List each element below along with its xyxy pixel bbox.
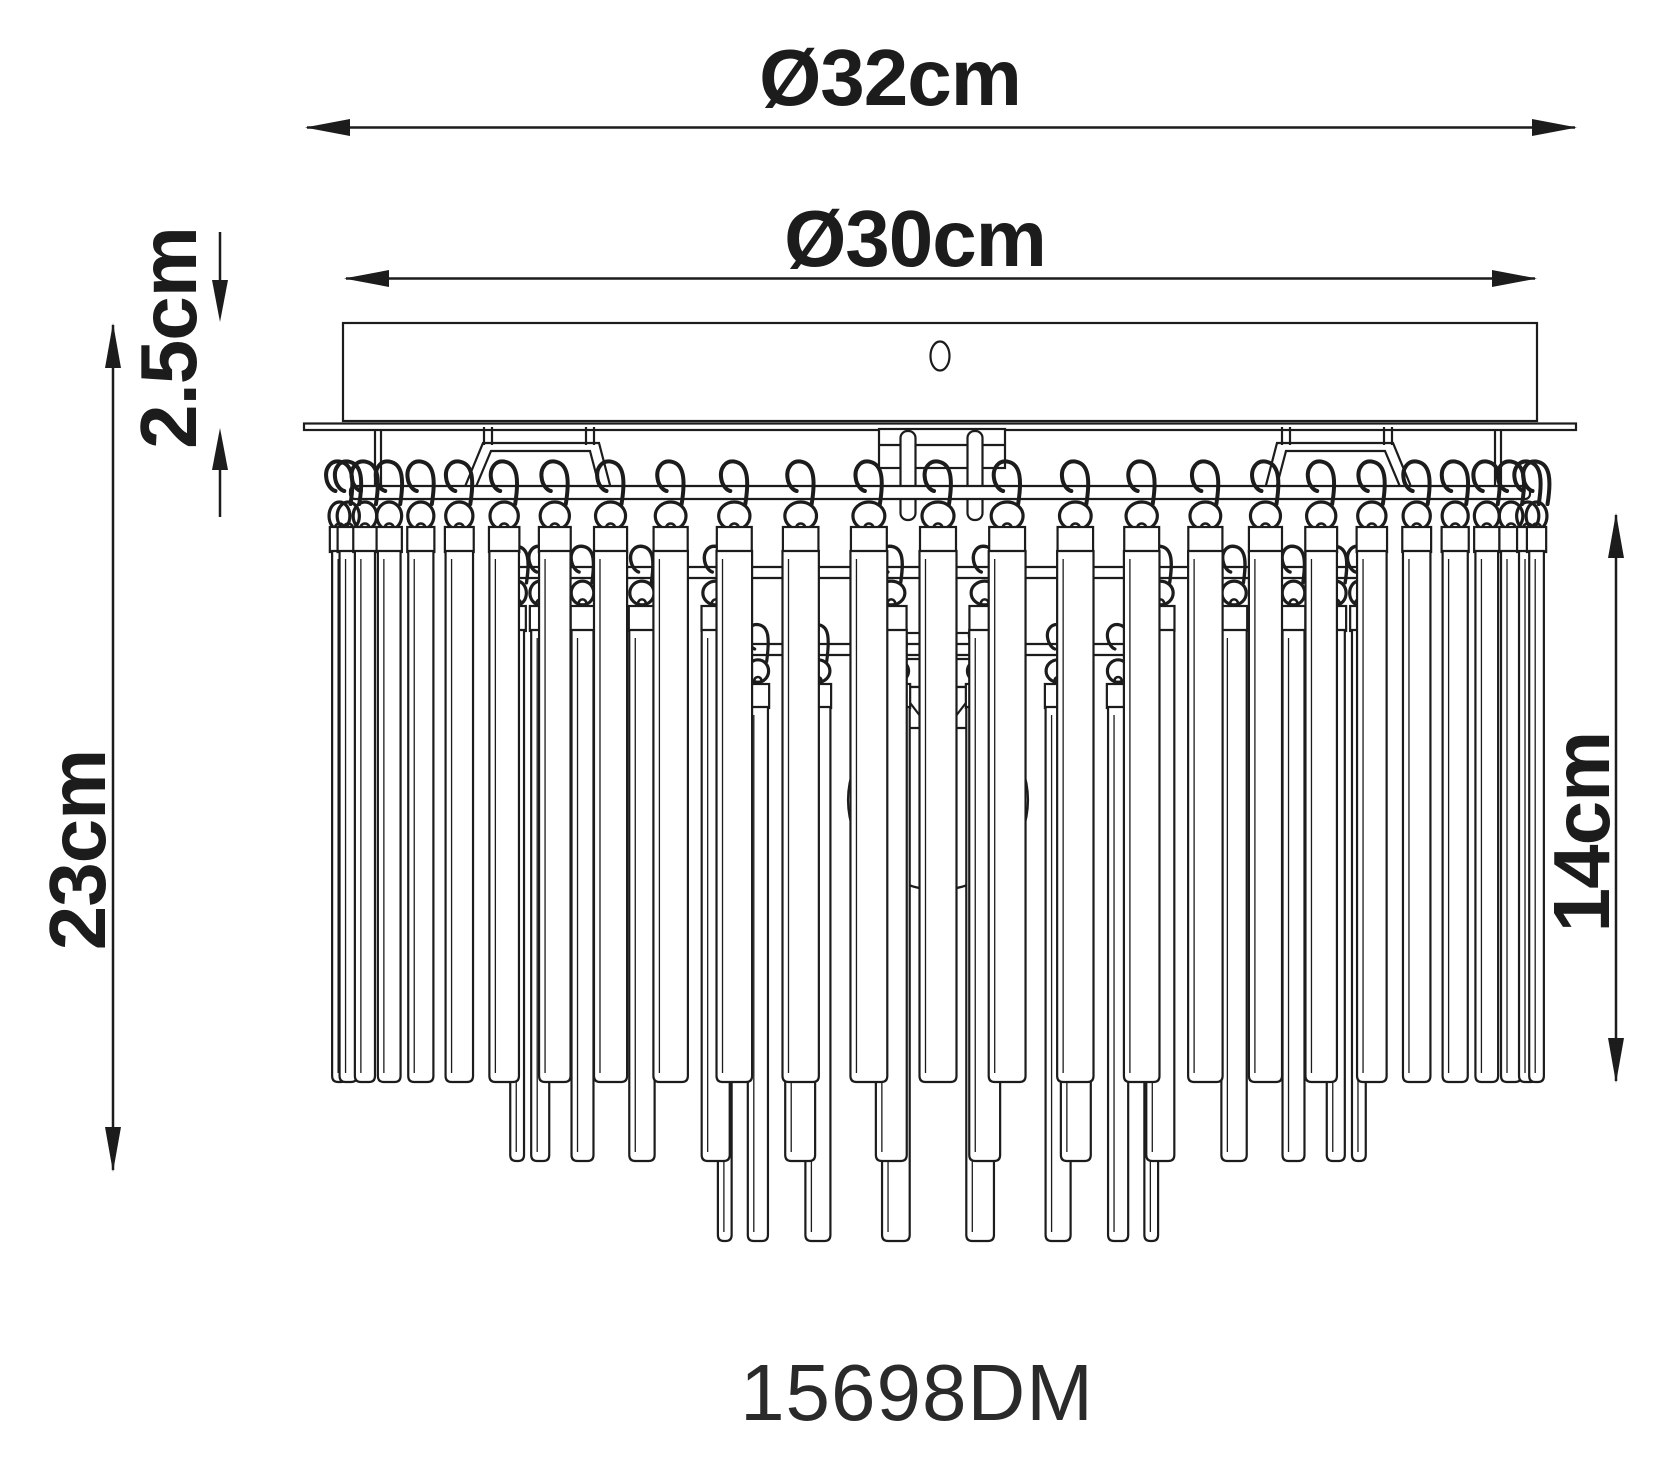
crystal-ring	[1222, 581, 1246, 605]
crystal-ring	[1442, 502, 1468, 530]
crystal-ring	[922, 502, 954, 530]
rod-tab	[1221, 606, 1247, 631]
crystal-rod	[1124, 551, 1160, 1082]
chandelier-drawing	[304, 323, 1576, 1241]
rod-tab	[1188, 527, 1222, 552]
label-canopy-height: 2.5cm	[124, 227, 213, 449]
crystal-rod	[572, 630, 594, 1161]
rod-tab	[629, 606, 655, 631]
rod-tab	[920, 527, 956, 552]
crystal-ring	[1190, 502, 1221, 530]
chandelier-dimension-diagram: Ø32cm Ø30cm 2.5cm 23cm 14cm	[0, 0, 1674, 1466]
crystal-ring	[630, 581, 654, 605]
rod-tab	[1124, 527, 1159, 552]
chain-link	[901, 431, 916, 520]
crystal-rod	[378, 551, 401, 1082]
crystal-ring	[1403, 502, 1430, 530]
rod-tab	[377, 527, 402, 552]
crystal-rod	[1188, 551, 1222, 1082]
product-code: 15698DM	[740, 1348, 1094, 1437]
crystal-rod	[1529, 551, 1544, 1082]
crystal-rod	[489, 551, 519, 1082]
hanging-hook-icon	[326, 461, 352, 504]
rod-tab	[353, 527, 376, 552]
crystal-rod	[629, 630, 654, 1161]
arrowhead-left-icon	[305, 119, 350, 136]
rod-tab	[571, 606, 595, 631]
crystal-ring	[446, 502, 473, 530]
crystal-ring	[377, 502, 402, 530]
rod-tab	[783, 527, 819, 552]
chain-link	[968, 431, 983, 520]
arrowhead-up-icon	[1608, 513, 1624, 558]
crystal-ring	[785, 502, 817, 530]
crystal-rod	[446, 551, 473, 1082]
crystal-ring	[1307, 502, 1336, 530]
crystal-rod	[1283, 630, 1305, 1161]
canopy-stem	[879, 429, 1005, 520]
crystal-rod	[1305, 551, 1336, 1082]
crystal-ring	[655, 502, 686, 530]
arrowhead-left-icon	[344, 270, 389, 287]
arrowhead-down-icon	[1608, 1038, 1624, 1083]
rod-tab	[1474, 527, 1499, 552]
rod-tab	[1357, 527, 1387, 552]
rod-tab	[1249, 527, 1282, 552]
crystal-ring	[490, 502, 518, 530]
rod-tab	[1058, 527, 1094, 552]
rod-tab	[654, 527, 688, 552]
arrowhead-right-icon	[1492, 270, 1537, 287]
plate-body	[343, 323, 1537, 421]
rod-tab	[1402, 527, 1431, 552]
rod-tab	[1442, 527, 1469, 552]
crystal-tier-front	[326, 461, 1549, 1082]
technical-drawing-page: Ø32cm Ø30cm 2.5cm 23cm 14cm	[0, 0, 1674, 1466]
arrowhead-right-icon	[1532, 119, 1577, 136]
crystal-rod	[1443, 551, 1468, 1082]
dimension-total-height	[105, 323, 121, 1172]
crystal-rod	[594, 551, 627, 1082]
crystal-tier-front-rail	[350, 486, 1530, 499]
crystal-ring	[1059, 502, 1091, 530]
label-crystal-length: 14cm	[1537, 732, 1626, 933]
mounting-plate	[304, 323, 1576, 430]
crystal-ring	[353, 502, 377, 530]
crystal-rod	[653, 551, 687, 1082]
rod-tab	[489, 527, 519, 552]
crystal-ring	[540, 502, 569, 530]
rod-tab	[594, 527, 627, 552]
crystal-ring	[571, 581, 594, 605]
rod-tab	[1282, 606, 1306, 631]
label-plate-diameter: Ø30cm	[784, 194, 1046, 283]
crystal-ring	[1474, 502, 1499, 530]
crystal-ring	[1250, 502, 1280, 530]
crystal-ring	[1358, 502, 1386, 530]
crystal-rod	[1221, 630, 1246, 1161]
rod-tab	[445, 527, 474, 552]
crystal-rod	[408, 551, 433, 1082]
dimension-canopy-height	[212, 232, 228, 517]
label-outer-diameter: Ø32cm	[759, 33, 1021, 122]
crystal-rod	[717, 551, 753, 1082]
crystal-rod	[1403, 551, 1430, 1082]
rod-tab	[407, 527, 434, 552]
crystal-rod	[1357, 551, 1387, 1082]
crystal-rod	[1475, 551, 1498, 1082]
crystal-rod	[1249, 551, 1282, 1082]
label-total-height: 23cm	[33, 750, 122, 951]
arrowhead-down-icon	[212, 280, 228, 322]
rod-tab	[989, 527, 1025, 552]
crystal-ring	[719, 502, 750, 530]
arrowhead-up-icon	[105, 323, 121, 368]
arrowhead-up-icon	[212, 428, 228, 470]
crystal-ring	[991, 502, 1023, 530]
crystal-rod	[355, 551, 375, 1082]
crystal-ring	[1126, 502, 1157, 530]
rod-tab	[539, 527, 571, 552]
keyhole-slot	[931, 342, 950, 371]
crystal-ring	[408, 502, 434, 530]
rod-tab	[1305, 527, 1337, 552]
crystal-ring	[1282, 581, 1305, 605]
crystal-ring	[853, 502, 885, 530]
rod-tab	[1527, 527, 1546, 552]
arrowhead-down-icon	[105, 1127, 121, 1172]
crystal-rod	[539, 551, 570, 1082]
crystal-ring	[596, 502, 626, 530]
rod-tab	[717, 527, 752, 552]
rod-tab	[851, 527, 887, 552]
